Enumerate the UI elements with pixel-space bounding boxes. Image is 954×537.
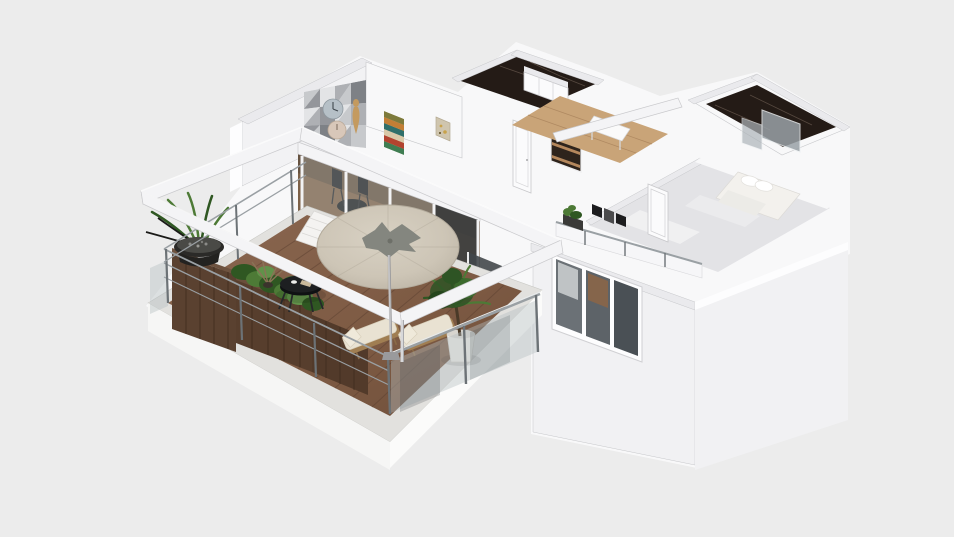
floorplan-render bbox=[0, 0, 954, 537]
door-knob bbox=[526, 159, 528, 161]
umbrella-base bbox=[382, 352, 400, 360]
cup bbox=[291, 280, 297, 284]
floorplan-3d-viewport[interactable] bbox=[0, 0, 954, 537]
